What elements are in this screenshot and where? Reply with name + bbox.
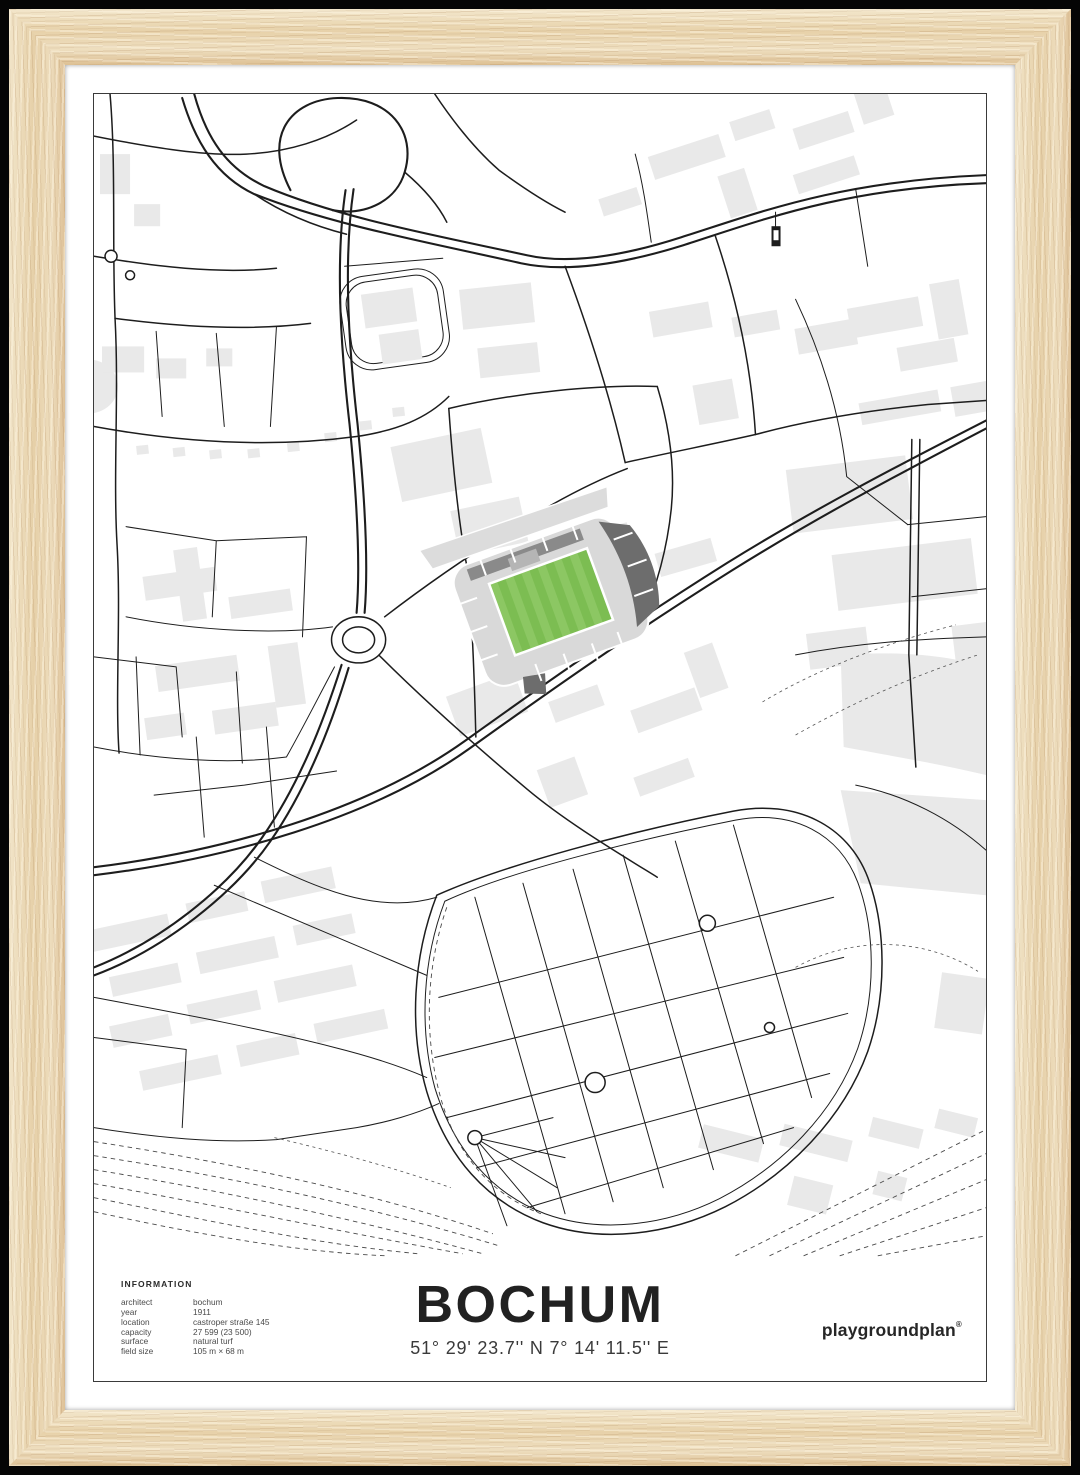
poster: INFORMATION architectbochum year1911 loc… [93,93,987,1382]
caption-band: INFORMATION architectbochum year1911 loc… [94,1231,986,1381]
athletics-track [337,265,453,373]
coordinates: 51° 29' 23.7'' N 7° 14' 11.5'' E [410,1338,669,1359]
mat-border: INFORMATION architectbochum year1911 loc… [65,65,1015,1410]
wood-frame: INFORMATION architectbochum year1911 loc… [9,9,1071,1466]
frame-top [9,9,1071,65]
poster-title: BOCHUM [410,1279,669,1331]
info-block: INFORMATION architectbochum year1911 loc… [121,1279,270,1357]
info-heading: INFORMATION [121,1279,270,1289]
info-row: field size105 m × 68 m [121,1347,270,1357]
city-map [94,94,986,1381]
title-block: BOCHUM 51° 29' 23.7'' N 7° 14' 11.5'' E [410,1279,669,1359]
framed-poster-photo: INFORMATION architectbochum year1911 loc… [0,0,1080,1475]
frame-left [9,9,65,1466]
frame-right [1015,9,1071,1466]
frame-bottom [9,1410,1071,1466]
brand-logo: playgroundplan® [822,1320,962,1341]
registered-mark: ® [956,1320,962,1329]
